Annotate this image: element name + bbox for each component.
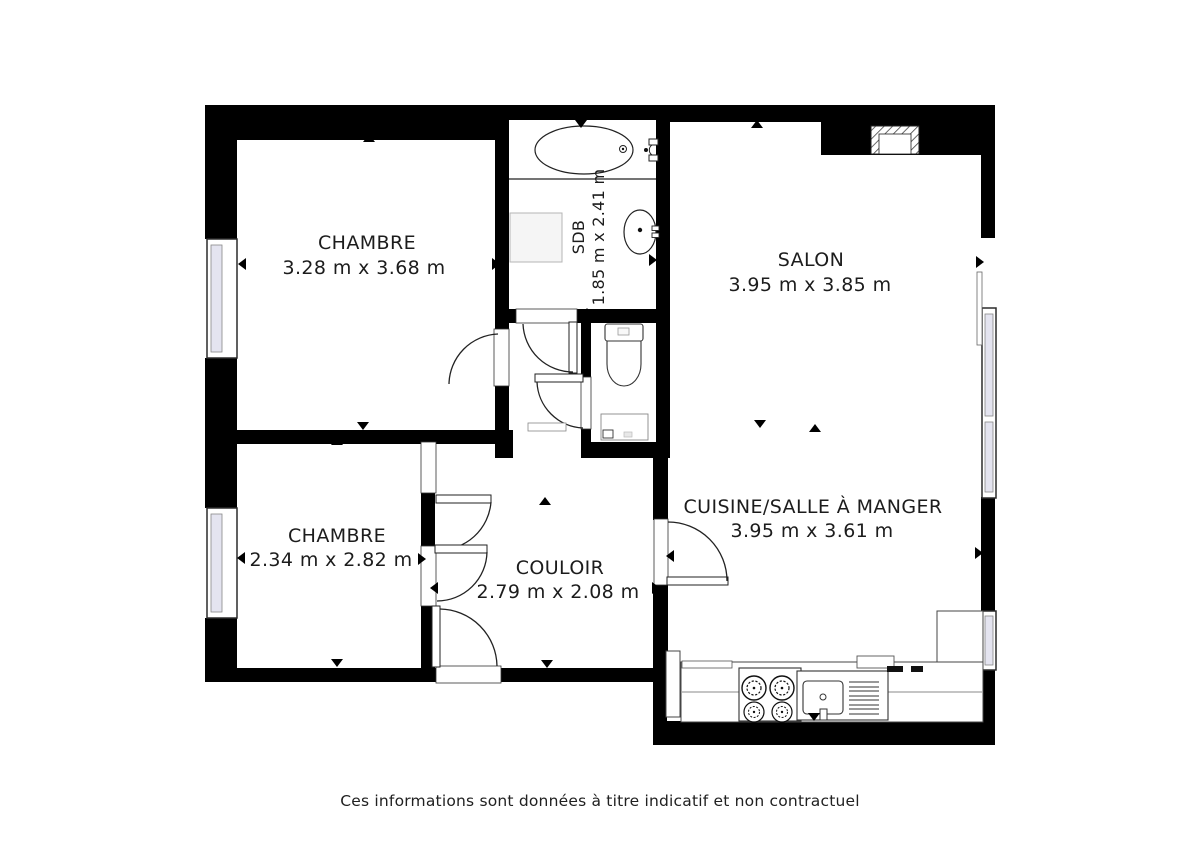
footer-disclaimer: Ces informations sont données à titre in… — [0, 792, 1200, 810]
wall-segment — [656, 105, 823, 122]
window — [207, 508, 237, 618]
counter-mark — [911, 666, 923, 672]
room-dims-chambre2: 2.34 m x 2.82 m — [249, 549, 412, 571]
wall-segment — [205, 105, 509, 140]
wc-small-mark — [624, 432, 632, 437]
flue-inner — [879, 134, 911, 154]
room-dims-sdb: 1.85 m x 2.41 m — [589, 169, 608, 306]
door-leaf — [436, 495, 491, 503]
door-leaf — [432, 606, 440, 667]
window — [982, 611, 996, 670]
dimension-arrow — [649, 254, 657, 266]
counter-ledge — [682, 661, 732, 668]
floor-plan-canvas: CHAMBRE 3.28 m x 3.68 m SDB 1.85 m x 2.4… — [0, 0, 1200, 849]
door-opening — [516, 309, 577, 323]
stove — [739, 668, 801, 722]
door-wc — [535, 374, 583, 428]
door-sdb — [523, 322, 577, 373]
room-dims-couloir: 2.79 m x 2.08 m — [476, 581, 639, 603]
doors — [432, 322, 728, 667]
room-label-cuisine: CUISINE/SALLE À MANGER — [683, 495, 942, 518]
wall-segment — [205, 430, 513, 444]
toilet-flush — [618, 328, 629, 335]
window-sill-line — [977, 272, 982, 345]
door-cuisine — [667, 522, 728, 585]
washbasin — [624, 210, 659, 254]
shower-tray — [510, 213, 562, 262]
room-label-sdb: SDB — [569, 220, 588, 254]
room-label-couloir: COULOIR — [516, 557, 605, 579]
wall-segment — [656, 120, 670, 458]
dimension-arrow — [754, 420, 766, 428]
room-dims-chambre1: 3.28 m x 3.68 m — [282, 257, 445, 279]
door-opening — [654, 519, 668, 585]
door-opening — [421, 546, 436, 606]
floor-plan: CHAMBRE 3.28 m x 3.68 m SDB 1.85 m x 2.4… — [0, 0, 1200, 849]
wall-segment — [495, 140, 509, 430]
door-leaf — [667, 577, 728, 585]
dimension-arrow — [539, 497, 551, 505]
room-label-chambre1: CHAMBRE — [318, 232, 416, 254]
dimension-arrow — [976, 256, 984, 268]
door-leaf — [435, 545, 487, 553]
counter-mark — [887, 666, 903, 672]
room-dims-cuisine: 3.95 m x 3.61 m — [730, 520, 893, 542]
wall-segment — [581, 442, 667, 458]
entrance-opening — [436, 666, 501, 683]
wall-segment — [653, 458, 668, 520]
door-arc — [668, 522, 727, 581]
door-arc — [537, 382, 583, 428]
door-arc — [449, 334, 498, 384]
door-arc — [440, 609, 497, 666]
kitchen-sink — [797, 671, 888, 720]
door-leaf — [569, 322, 577, 373]
kitchen — [666, 611, 983, 722]
dimension-arrow — [809, 424, 821, 432]
door-couloir-closet — [436, 495, 491, 550]
window — [207, 239, 237, 358]
entrance-door — [432, 606, 497, 667]
bathtub — [535, 126, 633, 174]
door-opening — [494, 329, 509, 386]
window — [982, 308, 996, 498]
room-labels: CHAMBRE 3.28 m x 3.68 m SDB 1.85 m x 2.4… — [249, 169, 942, 603]
dimension-arrow — [237, 552, 245, 564]
flue — [871, 126, 919, 154]
door-opening — [581, 377, 591, 429]
toilet-bowl — [607, 341, 641, 386]
door-leaf — [535, 374, 583, 382]
bathtub-drain-dot — [622, 148, 624, 150]
door-arc — [438, 502, 491, 550]
room-dims-salon: 3.95 m x 3.85 m — [728, 274, 891, 296]
wall-segment — [653, 721, 995, 745]
wall-segment — [495, 430, 513, 458]
door-chambre1 — [449, 334, 498, 384]
dimension-arrow — [331, 659, 343, 667]
counter-end-panel — [666, 651, 680, 717]
room-label-salon: SALON — [778, 249, 845, 271]
wall-segment — [509, 105, 658, 120]
wall-segment — [981, 155, 995, 238]
room-label-chambre2: CHAMBRE — [288, 525, 386, 547]
wc-small-box — [603, 430, 613, 438]
door-arc — [523, 324, 573, 372]
door-opening — [421, 442, 436, 493]
dimension-arrow — [541, 660, 553, 668]
dimension-arrow — [357, 422, 369, 430]
wc-fixtures — [601, 324, 648, 440]
dimension-arrow — [238, 258, 246, 270]
wall-segment — [981, 497, 995, 613]
bathtub-faucet-icon — [644, 139, 658, 161]
threshold — [528, 423, 566, 431]
